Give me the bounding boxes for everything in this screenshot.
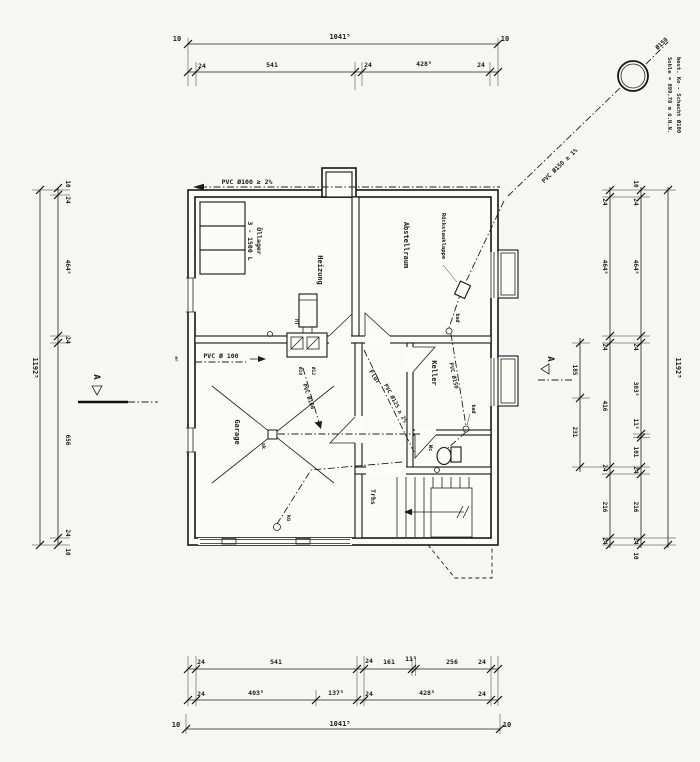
oil-tanks xyxy=(200,202,245,274)
dim: 24 xyxy=(478,658,486,666)
room-label-wc: Wc xyxy=(427,445,433,452)
dim: 24 xyxy=(478,690,486,698)
drawing-sheet: 10 1041⁵ 10 24 541 24 428⁵ 24 24 541 24 … xyxy=(0,0,700,762)
dim: 24 xyxy=(632,466,639,474)
dim: 24 xyxy=(198,62,206,70)
dim: 24 xyxy=(601,198,608,206)
garage-door xyxy=(198,538,352,545)
mark-ht: HT xyxy=(293,319,299,325)
dim-left-total: 1192⁵ xyxy=(31,357,39,378)
dim: 10 xyxy=(173,35,181,43)
dim: 24 xyxy=(365,690,373,698)
section-label-a-left: A xyxy=(91,374,101,380)
dim: 24 xyxy=(64,336,71,344)
mark-d10: Ø10 xyxy=(297,366,304,375)
pipe-to-shaft xyxy=(508,88,620,196)
dim: 137⁵ xyxy=(328,689,344,697)
dim: 24 xyxy=(197,690,205,698)
mark-bad-upper: bad xyxy=(454,313,460,322)
mark-d12: Ø12 xyxy=(310,366,317,375)
dim: 464⁵ xyxy=(601,260,608,274)
floor-drain-sk xyxy=(268,430,277,439)
dashed-exterior-outline xyxy=(428,545,492,578)
dim: 24 xyxy=(632,343,639,351)
dim: 24 xyxy=(64,529,71,537)
room-label-trhs: Trhs xyxy=(369,489,377,505)
pipe-label-top: PVC Ø100 ≥ 2% xyxy=(222,178,273,186)
dim: 541 xyxy=(270,658,282,666)
dim: 24 xyxy=(632,198,639,206)
manhole-label-line2: Sohle = 899,78 m ü.N.N. xyxy=(666,57,672,133)
room-label-oellager: Öllager xyxy=(255,227,264,254)
room-label-keller: Keller xyxy=(430,360,438,385)
dim: 11⁵ xyxy=(632,419,639,430)
dim: 161 xyxy=(383,658,395,666)
dim: 10 xyxy=(172,721,180,729)
dim: 24 xyxy=(601,537,608,545)
room-label-abstellraum: Abstellraum xyxy=(402,222,410,268)
label-rueckstauklappe: Rückstauklappe xyxy=(440,213,446,260)
pipe-label-shaft-dia: Ø150 xyxy=(654,36,670,52)
dim: 24 xyxy=(477,61,485,69)
dim: 403⁵ xyxy=(248,689,264,697)
dim: 656 xyxy=(64,435,71,446)
manhole-label-line1: best. Ko - Schacht Ø100 xyxy=(675,57,682,133)
dim: 24 xyxy=(632,537,639,545)
section-marker-right xyxy=(538,364,572,380)
dim: 24 xyxy=(365,657,373,665)
pipe-label-garage-h: PVC Ø 100 xyxy=(203,352,238,360)
dim: 428⁵ xyxy=(419,689,435,697)
dim: 10 xyxy=(501,35,509,43)
dim: 10 xyxy=(64,548,71,556)
dim: 10 xyxy=(632,180,639,188)
section-marker-left xyxy=(78,386,158,402)
mark-sk: sk xyxy=(260,443,266,449)
room-label-garage: Garage xyxy=(233,419,241,444)
dim: 185 xyxy=(571,365,578,376)
dim: 1041⁵ xyxy=(329,33,350,41)
dim: 101 xyxy=(632,447,639,458)
dim: 303⁵ xyxy=(632,382,639,396)
sewer-shaft xyxy=(618,61,648,91)
dim: 11⁵ xyxy=(405,655,417,663)
dim: 24 xyxy=(364,61,372,69)
dim: 24 xyxy=(601,343,608,351)
mark-bad-lower: bad xyxy=(470,404,476,413)
dim: 256 xyxy=(446,658,458,666)
dim: 24 xyxy=(64,196,71,204)
room-label-heizung: Heizung xyxy=(316,255,324,285)
dim: 1041⁵ xyxy=(329,720,350,728)
dim: 24 xyxy=(601,464,608,472)
floor-plan-drawing: 10 1041⁵ 10 24 541 24 428⁵ 24 24 541 24 … xyxy=(0,0,700,762)
dim: 416 xyxy=(601,401,608,412)
dim: 216 xyxy=(601,502,608,513)
dim: 231 xyxy=(571,427,578,438)
boiler xyxy=(299,294,317,327)
dim: 24 xyxy=(197,658,205,666)
dim-right-total: 1192⁵ xyxy=(674,357,682,378)
dim: 10 xyxy=(503,721,511,729)
dim: 428⁵ xyxy=(416,60,432,68)
dim: 541 xyxy=(266,61,278,69)
mark-er: er xyxy=(173,356,178,362)
mark-kue: kü xyxy=(285,515,291,521)
dim: 10 xyxy=(632,552,639,560)
section-label-a-right: A xyxy=(545,356,555,362)
dim: 464⁵ xyxy=(632,260,639,274)
dim: 464⁵ xyxy=(64,260,71,274)
dim: 216 xyxy=(632,502,639,513)
dim: 10 xyxy=(64,180,71,188)
room-label-oellager-2: 3 - 1500 L xyxy=(246,221,254,260)
pipe-label-to-shaft: PVC Ø150 ≥ 1% xyxy=(541,147,580,185)
